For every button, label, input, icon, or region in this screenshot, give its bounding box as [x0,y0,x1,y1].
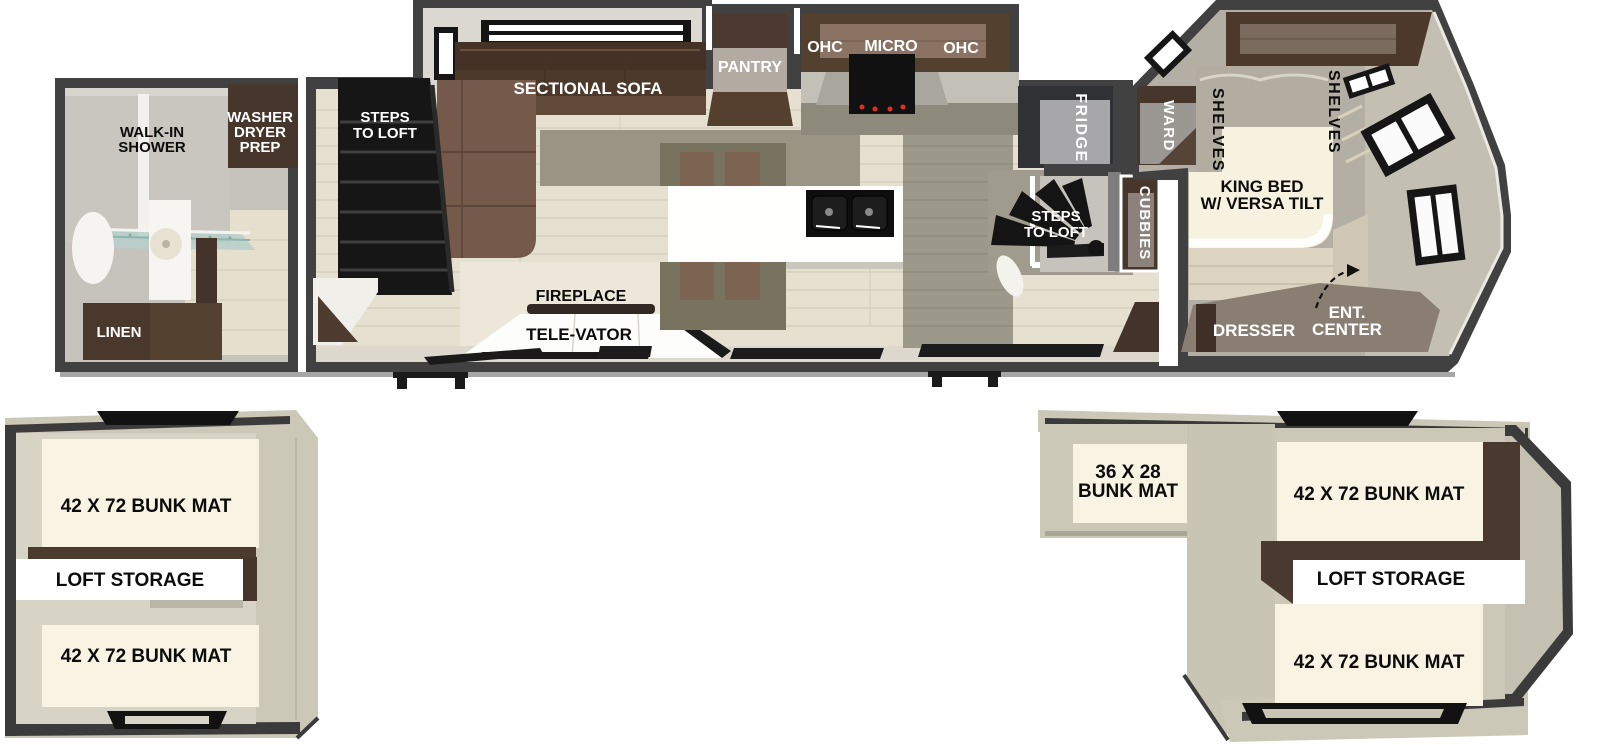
svg-text:SHELVES: SHELVES [1209,88,1226,172]
svg-text:STEPS: STEPS [360,109,409,126]
svg-text:TELE-VATOR: TELE-VATOR [526,325,632,344]
svg-text:MICRO: MICRO [864,38,917,55]
svg-text:42 X 72 BUNK MAT: 42 X 72 BUNK MAT [1294,652,1465,673]
svg-text:W/ VERSA TILT: W/ VERSA TILT [1201,194,1324,213]
svg-text:SHELVES: SHELVES [1325,70,1342,154]
svg-text:LOFT STORAGE: LOFT STORAGE [1317,569,1465,590]
svg-text:WARD: WARD [1160,100,1177,152]
svg-text:PANTRY: PANTRY [718,59,782,76]
svg-text:42 X 72 BUNK MAT: 42 X 72 BUNK MAT [61,496,232,517]
svg-text:TO LOFT: TO LOFT [353,125,417,142]
svg-text:CENTER: CENTER [1312,320,1382,339]
svg-text:FRIDGE: FRIDGE [1072,93,1089,162]
svg-text:LOFT STORAGE: LOFT STORAGE [56,570,204,591]
svg-text:OHC: OHC [943,40,979,57]
svg-text:42 X 72 BUNK MAT: 42 X 72 BUNK MAT [61,646,232,667]
svg-text:DRESSER: DRESSER [1213,321,1295,340]
svg-text:BUNK MAT: BUNK MAT [1078,481,1178,502]
svg-text:FIREPLACE: FIREPLACE [536,288,627,305]
svg-text:STEPS: STEPS [1031,208,1080,225]
svg-text:TO LOFT: TO LOFT [1024,224,1088,241]
svg-text:SECTIONAL SOFA: SECTIONAL SOFA [514,79,663,98]
svg-text:PREP: PREP [240,139,281,156]
svg-text:36 X 28: 36 X 28 [1095,462,1161,483]
svg-text:42 X 72 BUNK MAT: 42 X 72 BUNK MAT [1294,484,1465,505]
svg-text:CUBBIES: CUBBIES [1136,186,1153,261]
svg-text:OHC: OHC [807,39,843,56]
svg-text:SHOWER: SHOWER [118,139,186,156]
svg-text:LINEN: LINEN [97,324,142,341]
